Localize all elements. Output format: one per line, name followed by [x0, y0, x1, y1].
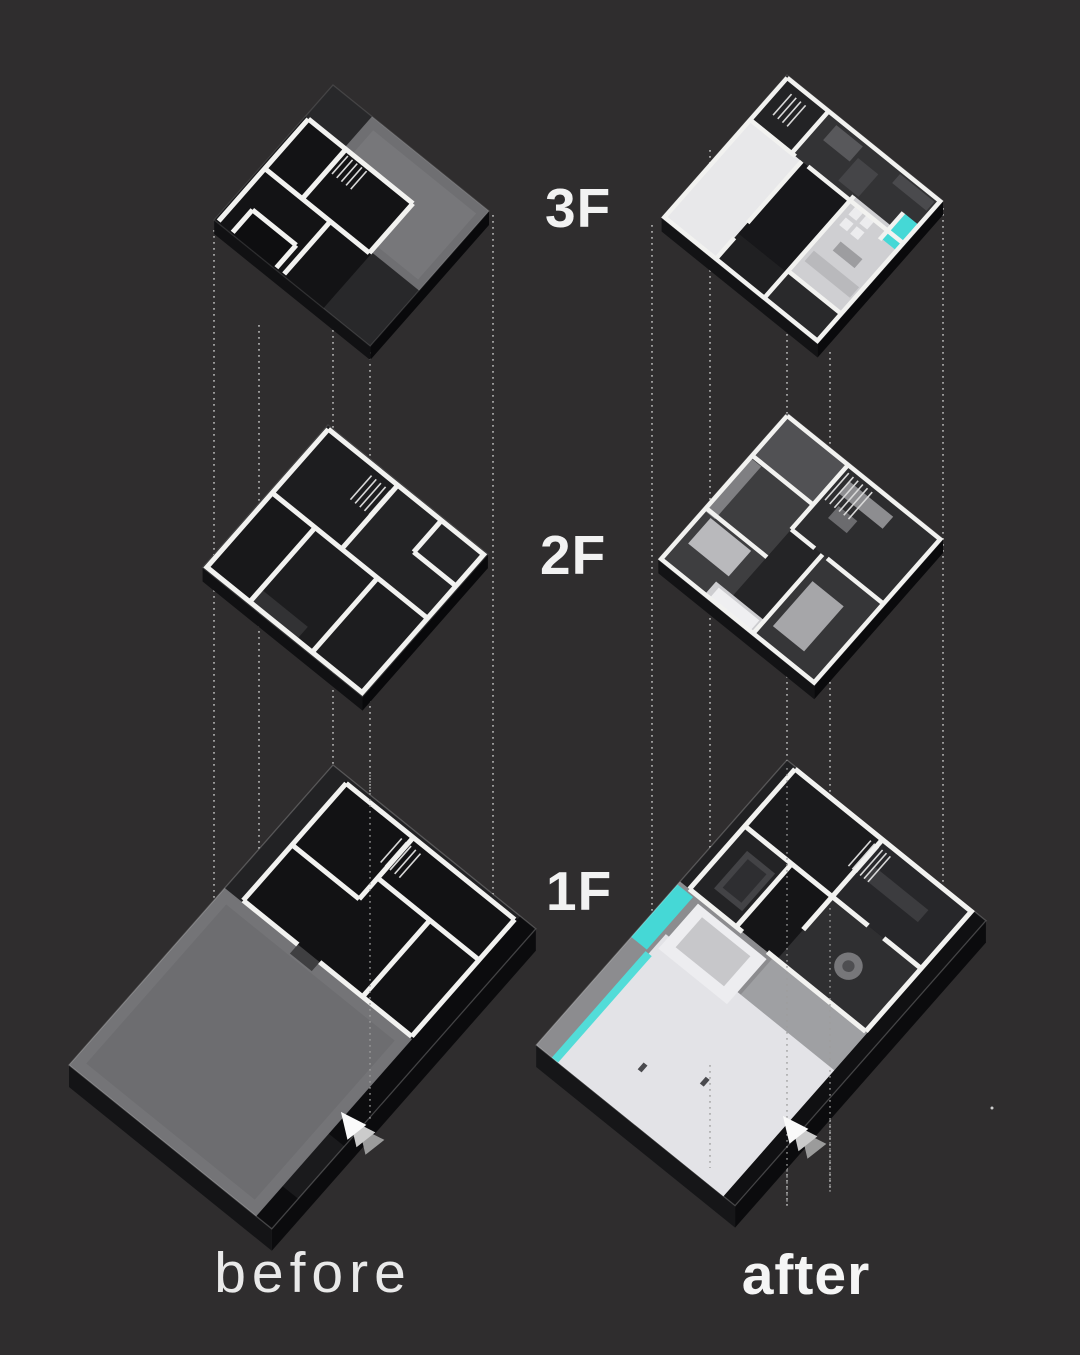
floor-label-2f: 2F [540, 528, 606, 583]
plan-after-1f [536, 760, 986, 1228]
axonometric-scene [0, 0, 1080, 1355]
diagram-stage: 3F 2F 1F before after [0, 0, 1080, 1355]
caption-after: after [742, 1247, 871, 1304]
plan-before-2f [203, 425, 488, 711]
plan-after-3f [662, 75, 943, 358]
floor-label-1f: 1F [546, 864, 612, 919]
floor-label-3f: 3F [545, 181, 611, 236]
plan-before-3f [214, 85, 489, 360]
plan-after-2f [658, 413, 943, 699]
speck-dot [991, 1107, 994, 1110]
plan-before-1f [69, 765, 536, 1251]
caption-before: before [214, 1245, 412, 1302]
